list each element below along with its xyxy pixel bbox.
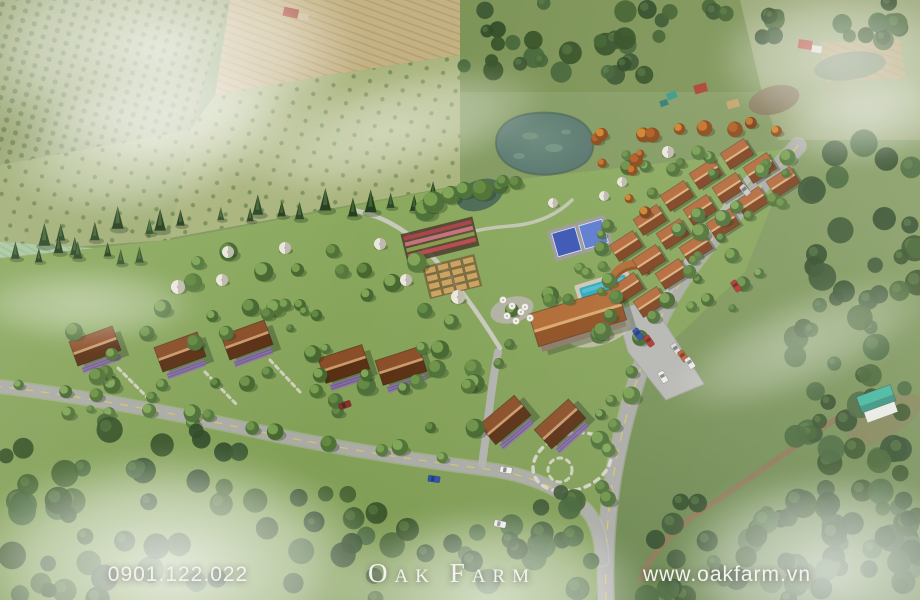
- umbrella: [503, 312, 510, 319]
- forest-tree: [850, 129, 878, 157]
- car: [500, 466, 513, 474]
- car: [428, 475, 441, 483]
- forest-tree: [583, 553, 599, 569]
- forest-tree: [895, 492, 913, 510]
- forest-tree: [594, 34, 607, 47]
- forest-tree: [760, 570, 783, 593]
- forest-tree: [735, 546, 756, 567]
- forest-tree: [554, 485, 569, 500]
- forest-tree: [60, 507, 76, 523]
- forest-tree: [873, 207, 896, 230]
- forest-tree: [290, 489, 308, 507]
- forest-tree: [868, 478, 894, 504]
- forest-tree: [777, 553, 795, 571]
- forest-tree: [867, 449, 891, 473]
- forest-tree: [230, 443, 248, 461]
- forest-tree: [662, 4, 678, 20]
- forest-tree: [868, 13, 888, 33]
- forest-tree: [476, 2, 493, 19]
- forest-tree: [42, 583, 57, 598]
- forest-tree: [51, 460, 78, 487]
- forest-tree: [475, 569, 500, 594]
- lake: [496, 113, 594, 175]
- forest-tree: [150, 433, 173, 456]
- forest-tree: [827, 217, 853, 243]
- forest-tree: [892, 465, 909, 482]
- forest-tree: [186, 571, 206, 591]
- forest-tree: [887, 550, 911, 574]
- forest-tree: [646, 530, 665, 549]
- forest-tree: [745, 525, 767, 547]
- forest-tree: [40, 556, 56, 572]
- forest-tree: [613, 27, 635, 49]
- forest-tree: [533, 499, 549, 515]
- forest-tree: [667, 549, 686, 568]
- forest-tree: [779, 508, 798, 527]
- forest-tree: [897, 381, 912, 396]
- forest-tree: [505, 35, 520, 50]
- forest-tree: [531, 534, 555, 558]
- forest-tree: [256, 517, 279, 540]
- forest-tree: [810, 577, 832, 599]
- umbrella: [508, 302, 515, 309]
- forest-tree: [656, 577, 679, 600]
- forest-tree: [318, 486, 333, 501]
- forest-tree: [283, 573, 303, 593]
- scene-svg: [0, 0, 920, 600]
- forest-tree: [288, 538, 314, 564]
- forest-tree: [652, 30, 665, 43]
- forest-tree: [818, 435, 845, 462]
- forest-tree: [137, 556, 164, 583]
- forest-tree: [550, 61, 571, 82]
- forest-tree: [485, 54, 498, 67]
- forest-tree: [469, 524, 486, 541]
- forest-tree: [167, 533, 191, 557]
- forest-tree: [822, 140, 848, 166]
- forest-tree: [867, 257, 883, 273]
- forest-tree: [808, 263, 836, 291]
- forest-tree: [491, 37, 505, 51]
- forest-tree: [859, 364, 882, 387]
- forest-tree: [524, 31, 543, 50]
- forest-tree: [893, 578, 908, 593]
- forest-tree: [10, 491, 37, 518]
- forest-tree: [13, 438, 34, 459]
- forest-tree: [843, 29, 856, 42]
- forest-tree: [766, 27, 783, 44]
- umbrella: [526, 314, 533, 321]
- forest-tree: [833, 280, 855, 302]
- forest-tree: [784, 425, 807, 448]
- forest-tree: [186, 469, 209, 492]
- umbrella: [512, 317, 519, 324]
- forest-tree: [143, 533, 169, 559]
- forest-tree: [614, 0, 636, 22]
- forest-tree: [875, 147, 899, 171]
- forest-tree: [91, 565, 118, 592]
- umbrella: [521, 303, 528, 310]
- forest-tree: [847, 305, 873, 331]
- forest-tree: [330, 542, 355, 567]
- forest-tree: [860, 560, 877, 577]
- forest-tree: [243, 488, 267, 512]
- aerial-render: 0901.122.022 Oak Farm www.oakfarm.vn: [0, 0, 920, 600]
- forest-tree: [816, 492, 840, 516]
- forest-tree: [192, 430, 211, 449]
- forest-tree: [443, 534, 462, 553]
- forest-tree: [798, 176, 826, 204]
- forest-tree: [875, 526, 896, 547]
- umbrella: [499, 296, 506, 303]
- forest-tree: [875, 501, 890, 516]
- forest-tree: [826, 166, 849, 189]
- forest-tree: [339, 486, 356, 503]
- forest-tree: [457, 59, 470, 72]
- forest-tree: [900, 511, 916, 527]
